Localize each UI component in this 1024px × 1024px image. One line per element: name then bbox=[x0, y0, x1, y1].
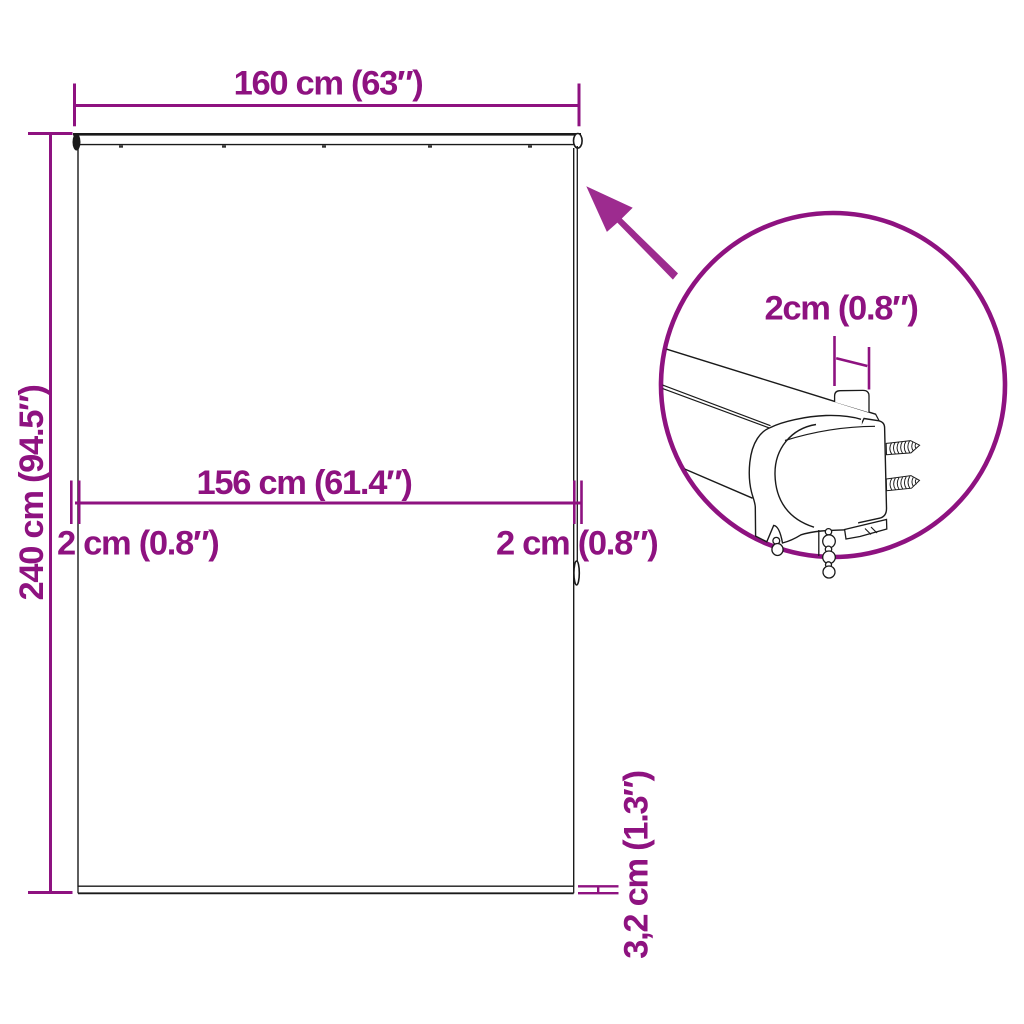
svg-text:3,2 cm (1.3″): 3,2 cm (1.3″) bbox=[618, 771, 656, 959]
svg-text:2 cm (0.8″): 2 cm (0.8″) bbox=[496, 525, 657, 563]
svg-text:160 cm (63″): 160 cm (63″) bbox=[234, 64, 423, 102]
svg-text:240 cm (94.5″): 240 cm (94.5″) bbox=[13, 385, 51, 600]
svg-text:156 cm (61.4″): 156 cm (61.4″) bbox=[196, 464, 411, 502]
svg-text:2 cm (0.8″): 2 cm (0.8″) bbox=[57, 525, 218, 563]
svg-text:2cm (0.8″): 2cm (0.8″) bbox=[764, 290, 917, 328]
